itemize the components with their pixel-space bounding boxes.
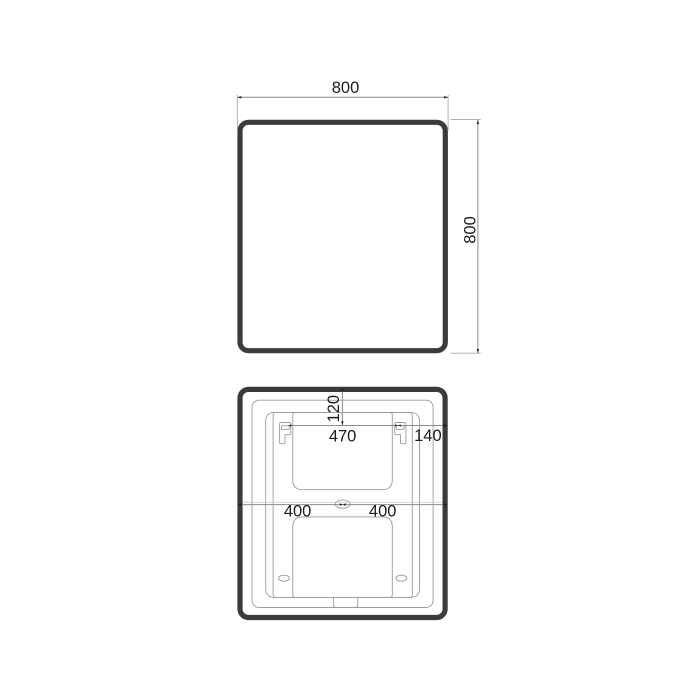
- svg-text:800: 800: [332, 79, 360, 97]
- svg-text:800: 800: [462, 216, 480, 244]
- svg-text:400: 400: [284, 503, 312, 521]
- svg-text:120: 120: [325, 395, 343, 423]
- svg-text:140: 140: [414, 427, 442, 445]
- svg-text:400: 400: [369, 503, 397, 521]
- svg-text:470: 470: [329, 428, 357, 446]
